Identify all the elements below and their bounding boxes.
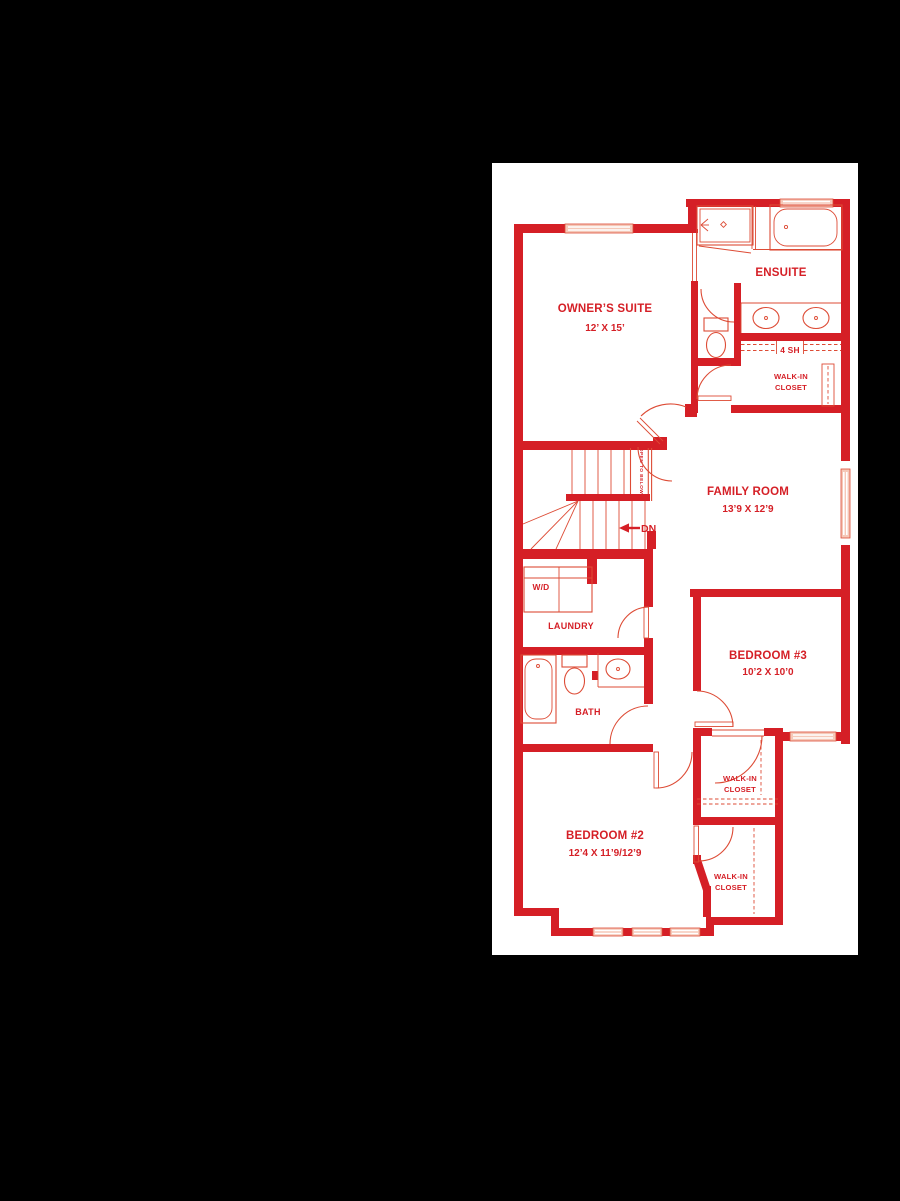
window-bedroom2-mid: [632, 928, 662, 936]
window-bedroom2-left: [593, 928, 623, 936]
bedroom3-dims: 10’2 X 10’0: [742, 667, 794, 678]
window-bedroom2-right: [670, 928, 700, 936]
bedroom2-label: BEDROOM #2: [566, 830, 644, 842]
window-owners-suite: [565, 224, 633, 233]
bath-label: BATH: [575, 707, 601, 717]
family-room-dims: 13’9 X 12’9: [722, 504, 774, 515]
bedroom2-closet-label-line2: CLOSET: [715, 883, 747, 892]
owners-suite-label: OWNER’S SUITE: [558, 303, 653, 315]
washer-dryer-label: W/D: [533, 582, 550, 592]
ensuite-closet-label-line2: CLOSET: [775, 383, 807, 392]
window-family-room: [841, 461, 850, 545]
family-room-label: FAMILY ROOM: [707, 486, 789, 498]
floor-plan: OWNER’S SUITE 12’ X 15’ ENSUITE 4 SH WAL…: [0, 0, 900, 1201]
shelf-label: 4 SH: [780, 345, 799, 355]
bedroom2-closet-label-line1: WALK-IN: [714, 872, 748, 881]
bedroom3-label: BEDROOM #3: [729, 650, 807, 662]
window-bedroom3: [790, 732, 836, 741]
bedroom3-closet-label-line2: CLOSET: [724, 785, 756, 794]
open-to-below-label: OPEN TO BELOW: [638, 448, 644, 495]
ensuite-closet-label-line1: WALK-IN: [774, 372, 808, 381]
ensuite-label: ENSUITE: [755, 267, 806, 279]
bedroom3-closet-label-line1: WALK-IN: [723, 774, 757, 783]
stairs-down-label: DN: [641, 523, 656, 535]
stair-landing: [566, 494, 650, 501]
window-ensuite: [780, 199, 833, 207]
laundry-label: LAUNDRY: [548, 621, 594, 631]
owners-suite-dims: 12’ X 15’: [585, 323, 625, 334]
bedroom2-dims: 12’4 X 11’9/12’9: [569, 848, 642, 859]
screenshot-canvas: OWNER’S SUITE 12’ X 15’ ENSUITE 4 SH WAL…: [0, 0, 900, 1201]
